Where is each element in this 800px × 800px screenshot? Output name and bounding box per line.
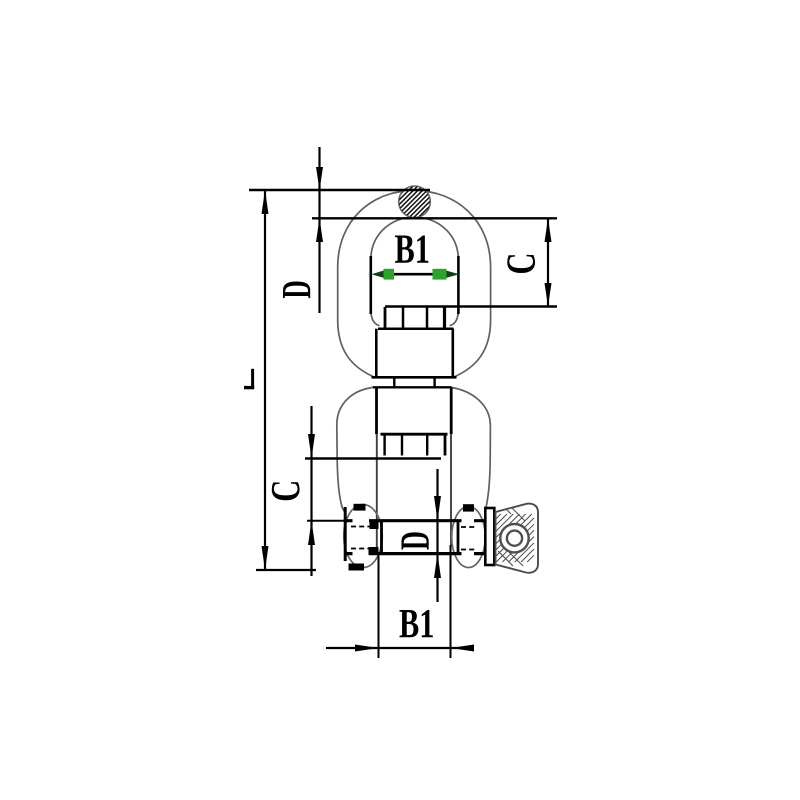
svg-text:C: C <box>498 253 543 275</box>
svg-text:C: C <box>262 480 307 502</box>
svg-text:B1: B1 <box>395 226 430 271</box>
svg-text:D: D <box>275 280 319 298</box>
svg-text:B1: B1 <box>399 600 434 645</box>
svg-text:D: D <box>393 531 438 550</box>
